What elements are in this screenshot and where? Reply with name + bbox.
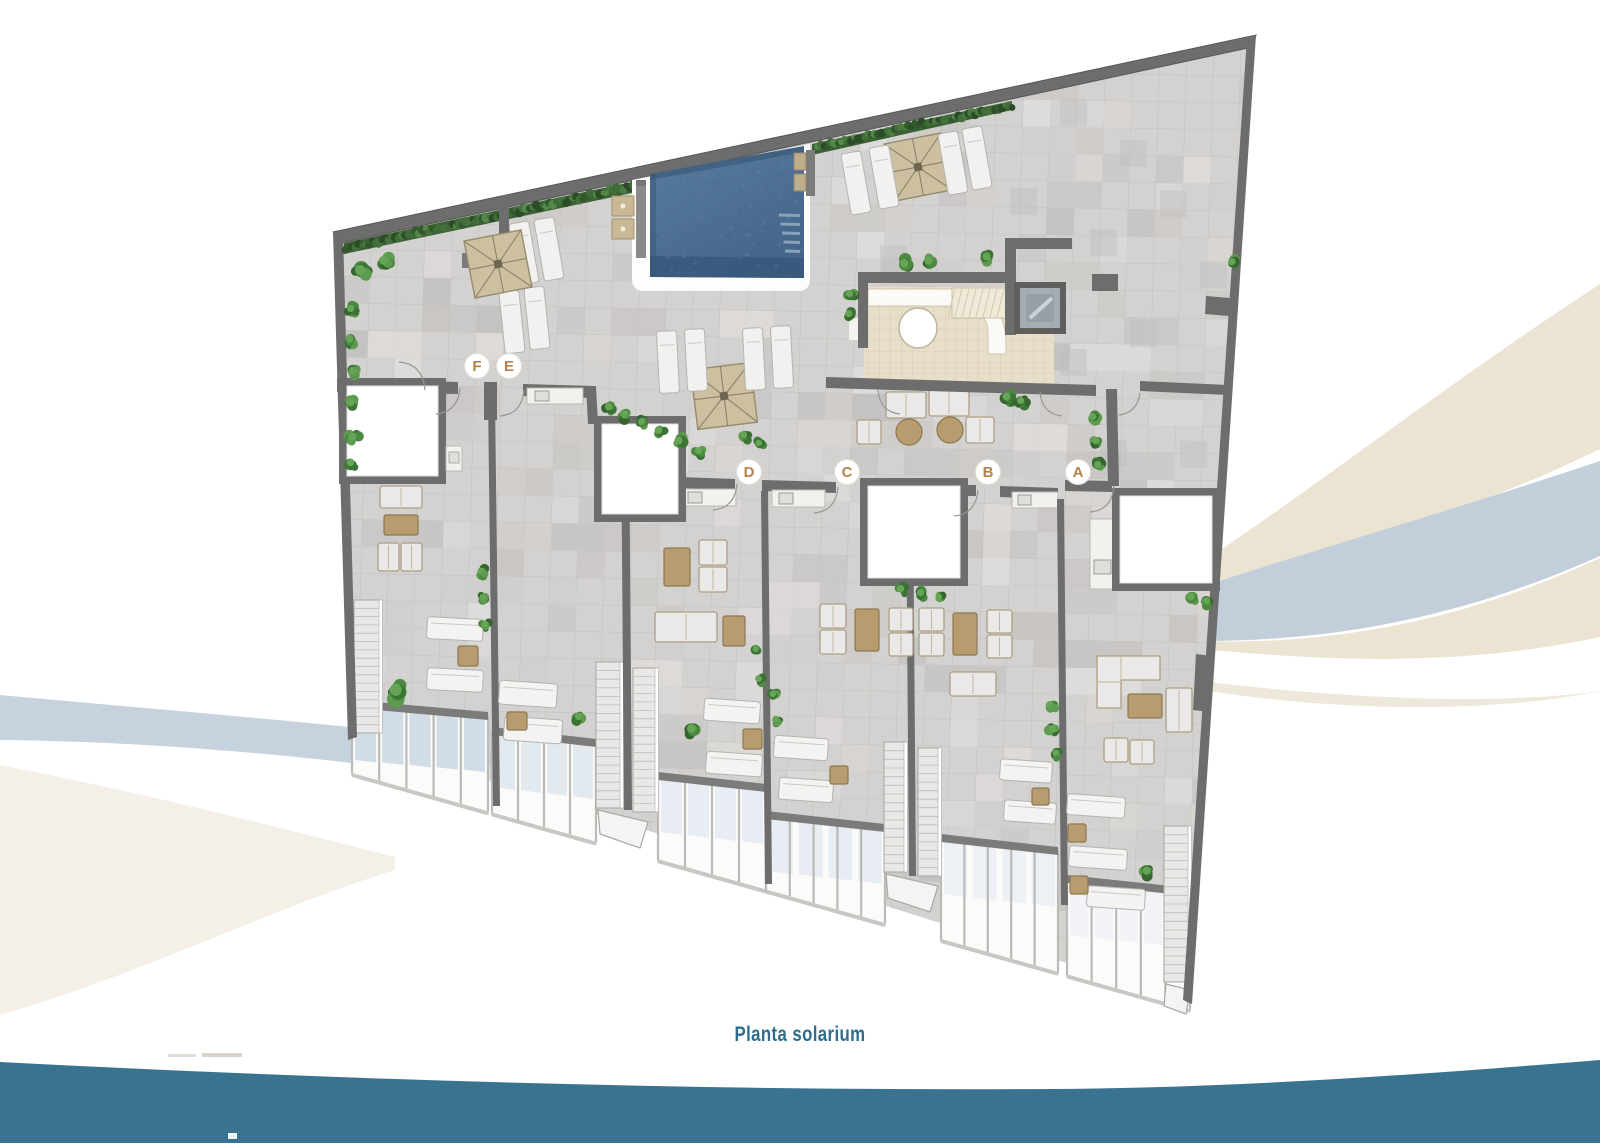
svg-text:C: C [842, 464, 853, 481]
svg-text:A: A [1073, 464, 1084, 481]
svg-text:D: D [744, 464, 755, 481]
svg-text:E: E [504, 358, 514, 375]
svg-text:B: B [983, 464, 994, 481]
svg-text:Planta solarium: Planta solarium [735, 1023, 866, 1046]
svg-text:F: F [472, 358, 481, 375]
